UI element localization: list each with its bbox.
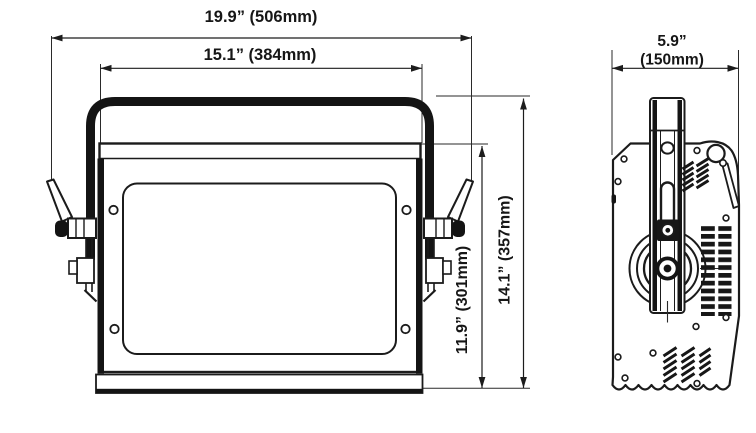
inner-height-label: 11.9” (301mm) (454, 246, 471, 355)
side-yoke-arm (650, 98, 685, 313)
overall-width-label: 19.9” (506mm) (205, 8, 318, 26)
dimension-drawing: 19.9” (506mm) 15.1” (384mm) 11.9” (301mm… (0, 0, 756, 433)
depth-label-mm: (150mm) (640, 52, 704, 69)
overall-height-label: 14.1” (357mm) (497, 195, 514, 304)
inner-width-label: 15.1” (384mm) (204, 46, 317, 64)
front-view (47, 102, 473, 394)
arm-hole (661, 142, 673, 153)
front-lens-panel (123, 184, 396, 355)
side-edge-tab (612, 195, 617, 204)
body-side-wall-right (416, 159, 423, 374)
technical-drawing-canvas: 19.9” (506mm) 15.1” (384mm) 11.9” (301mm… (0, 0, 756, 433)
bottom-flange-edge (96, 389, 423, 393)
side-view (612, 98, 740, 390)
depth-label-inches: 5.9” (657, 33, 686, 50)
body-side-wall-left (98, 159, 105, 374)
arm-slot (661, 183, 674, 226)
